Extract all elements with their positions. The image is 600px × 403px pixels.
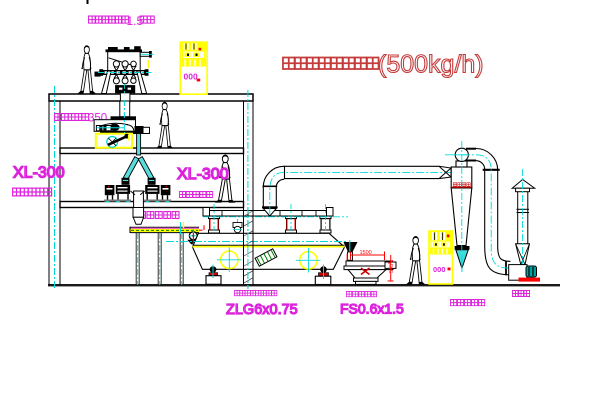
svg-text:545: 545 [389, 264, 395, 273]
svg-text:000: 000 [184, 72, 198, 82]
svg-text:XL-300: XL-300 [177, 166, 229, 183]
svg-text:1.5: 1.5 [127, 14, 144, 28]
svg-text:000: 000 [433, 265, 446, 274]
svg-text:1500: 1500 [360, 250, 372, 256]
svg-text:(500kg/h): (500kg/h) [378, 51, 484, 79]
svg-text:FS0.6x1.5: FS0.6x1.5 [340, 301, 404, 317]
svg-text:ZLG6x0.75: ZLG6x0.75 [226, 302, 298, 318]
svg-text:XL-300: XL-300 [13, 165, 65, 182]
